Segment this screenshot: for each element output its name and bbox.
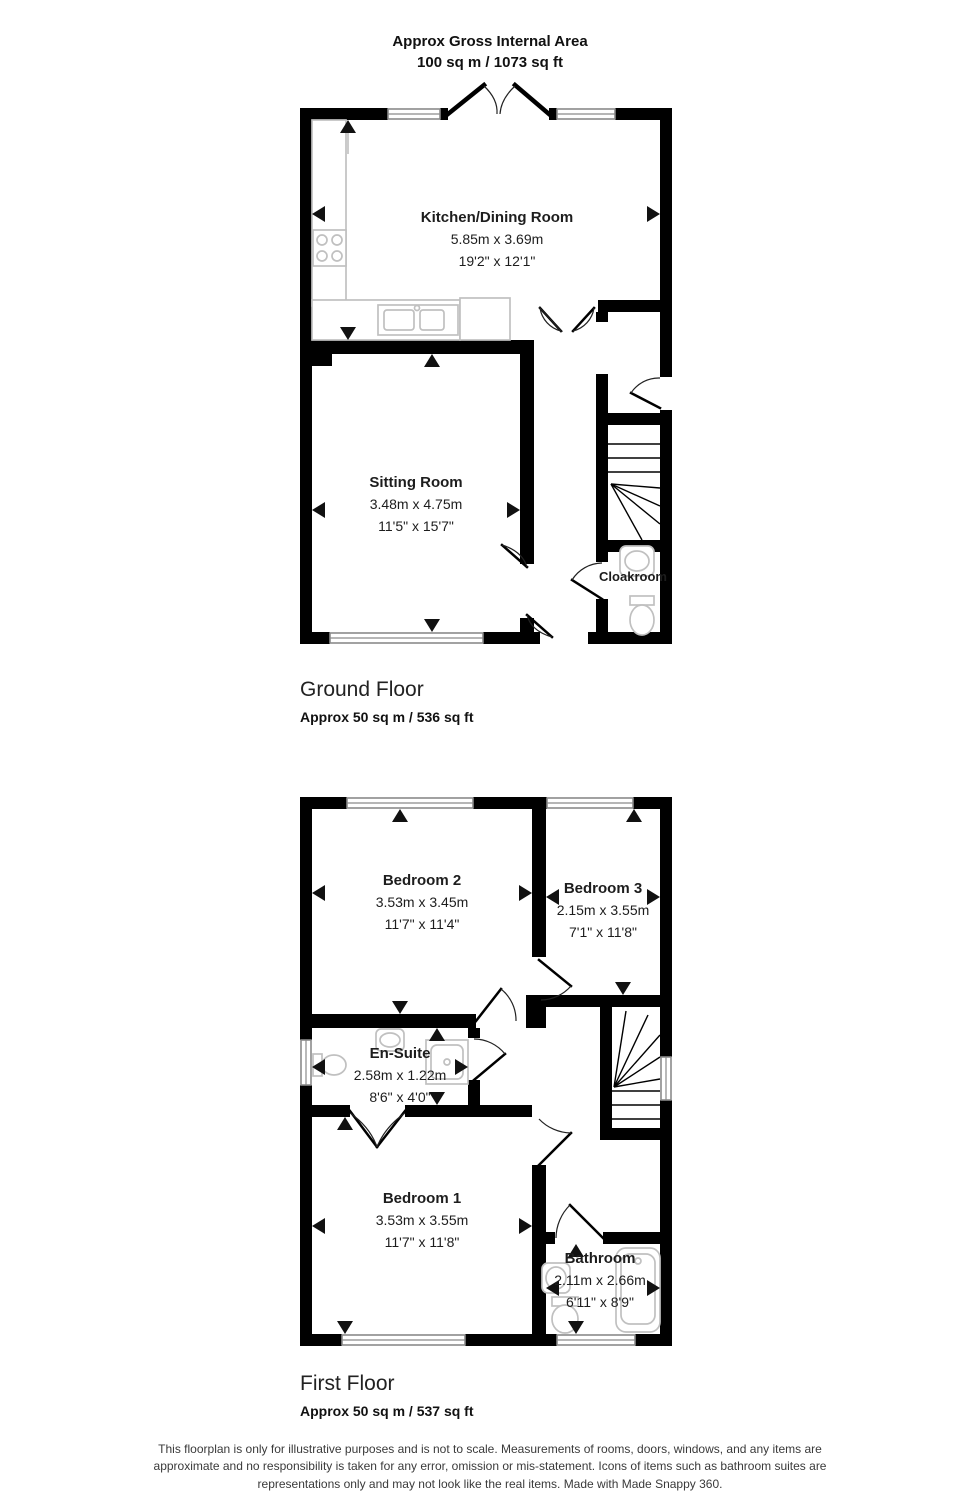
window: [388, 109, 440, 119]
measure-arrow-down: [429, 1092, 445, 1105]
first-floor-title-block: First Floor Approx 50 sq m / 537 sq ft: [300, 1372, 680, 1419]
door-arc: [539, 1119, 571, 1165]
window: [557, 1335, 635, 1345]
room-label-sitting-name: Sitting Room: [369, 474, 462, 491]
measure-arrow-down: [615, 982, 631, 995]
door-arc: [631, 378, 660, 408]
room-label-bedroom2-metric: 3.53m x 3.45m: [376, 894, 469, 910]
room-label-cloakroom-name: Cloakroom: [599, 569, 667, 584]
measure-arrow-up: [337, 1117, 353, 1130]
room-label-bathroom-metric: 2.11m x 2.66m: [554, 1272, 646, 1288]
room-label-bathroom-imperial: 6'11" x 8'9": [566, 1294, 634, 1310]
door-arc: [476, 989, 516, 1021]
measure-arrow-left: [312, 1218, 325, 1234]
stairs-icon: [608, 444, 660, 540]
ground-floor-walls: [300, 108, 672, 644]
room-label-bedroom2-name: Bedroom 2: [383, 872, 461, 889]
measure-arrow-right: [507, 502, 520, 518]
window: [547, 798, 633, 808]
room-label-bedroom1-metric: 3.53m x 3.55m: [376, 1212, 469, 1228]
door-arc: [350, 1111, 405, 1147]
ground-floor-area: Approx 50 sq m / 536 sq ft: [300, 709, 680, 725]
door-arc: [539, 960, 571, 1000]
measure-arrow-right: [519, 1218, 532, 1234]
first-floor-title: First Floor: [300, 1372, 680, 1396]
measure-arrow-right: [647, 206, 660, 222]
ground-floor-title-block: Ground Floor Approx 50 sq m / 536 sq ft: [300, 678, 680, 725]
room-label-kitchen-metric: 5.85m x 3.69m: [451, 231, 544, 247]
room-label-bedroom3-imperial: 7'1" x 11'8": [569, 924, 637, 940]
room-label-bedroom1-imperial: 11'7" x 11'8": [385, 1234, 460, 1250]
window: [342, 1335, 465, 1345]
hob-icon: [313, 230, 346, 266]
room-label-bathroom-name: Bathroom: [565, 1250, 636, 1267]
sink-icon: [378, 305, 458, 335]
measure-arrow-down: [392, 1001, 408, 1014]
window: [301, 1040, 311, 1085]
room-label-bedroom1-name: Bedroom 1: [383, 1190, 461, 1207]
room-label-bedroom2-imperial: 11'7" x 11'4": [385, 916, 460, 932]
kitchen-fixtures: [312, 120, 510, 340]
room-label-kitchen-name: Kitchen/Dining Room: [421, 209, 574, 226]
stairs-icon: [612, 1011, 660, 1119]
measure-arrow-up: [429, 1028, 445, 1041]
window: [330, 633, 483, 643]
header-subtitle: 100 sq m / 1073 sq ft: [0, 52, 980, 73]
room-label-ensuite-metric: 2.58m x 1.22m: [354, 1067, 447, 1083]
measure-arrow-down: [337, 1321, 353, 1334]
window: [557, 109, 615, 119]
measure-arrow-up: [424, 354, 440, 367]
ground-floor-title: Ground Floor: [300, 678, 680, 702]
toilet-icon: [630, 596, 654, 635]
french-doors: [448, 85, 549, 114]
room-label-ensuite-name: En-Suite: [370, 1045, 431, 1062]
floorplan-page: Approx Gross Internal Area 100 sq m / 10…: [0, 0, 980, 1505]
measure-arrow-right: [519, 885, 532, 901]
first-floor-plan: Bedroom 2 3.53m x 3.45m 11'7" x 11'4" Be…: [300, 795, 675, 1353]
window: [661, 1057, 671, 1100]
header-title: Approx Gross Internal Area: [0, 31, 980, 52]
measure-arrow-up: [626, 809, 642, 822]
measure-arrow-left: [312, 885, 325, 901]
room-label-bedroom3-metric: 2.15m x 3.55m: [557, 902, 650, 918]
gross-internal-area-header: Approx Gross Internal Area 100 sq m / 10…: [0, 31, 980, 73]
ground-floor-plan: Kitchen/Dining Room 5.85m x 3.69m 19'2" …: [300, 84, 675, 656]
ground-floor-windows: [330, 109, 615, 643]
window: [347, 798, 473, 808]
door-arc: [474, 1039, 505, 1080]
door-arc: [556, 1205, 603, 1238]
measure-arrow-down: [424, 619, 440, 632]
room-label-kitchen-imperial: 19'2" x 12'1": [459, 253, 536, 269]
cloakroom-fixtures: [620, 546, 654, 635]
measure-arrow-left: [312, 502, 325, 518]
room-label-sitting-imperial: 11'5" x 15'7": [378, 518, 454, 534]
first-floor-area: Approx 50 sq m / 537 sq ft: [300, 1403, 680, 1419]
measure-arrow-up: [392, 809, 408, 822]
disclaimer-text: This floorplan is only for illustrative …: [135, 1441, 845, 1493]
dishwasher-icon: [460, 298, 510, 340]
room-label-ensuite-imperial: 8'6" x 4'0": [369, 1089, 430, 1105]
room-label-bedroom3-name: Bedroom 3: [564, 880, 642, 897]
ground-floor-labels: Kitchen/Dining Room 5.85m x 3.69m 19'2" …: [369, 209, 667, 584]
room-label-sitting-metric: 3.48m x 4.75m: [370, 496, 463, 512]
door-arc: [572, 563, 602, 599]
door-arc: [540, 308, 594, 331]
